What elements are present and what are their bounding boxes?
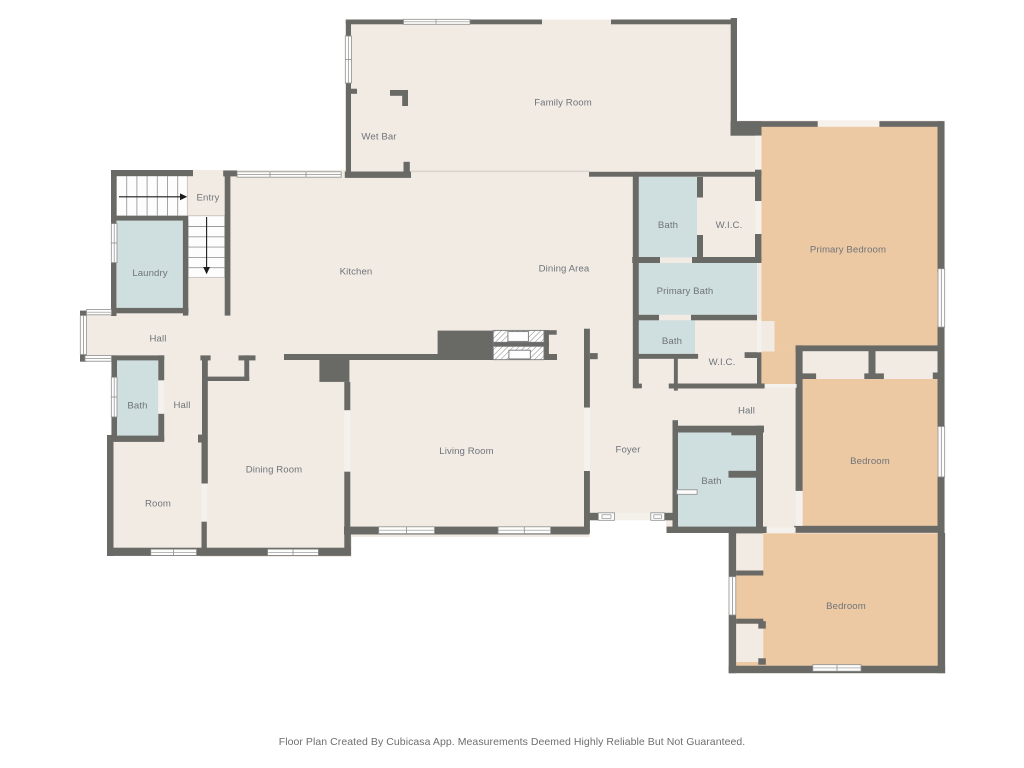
svg-text:Laundry: Laundry — [132, 268, 167, 279]
svg-text:Bath: Bath — [127, 401, 147, 412]
svg-text:Floor Plan Created By Cubicasa: Floor Plan Created By Cubicasa App. Meas… — [279, 736, 746, 748]
svg-text:Bath: Bath — [701, 476, 721, 487]
svg-text:Kitchen: Kitchen — [340, 267, 373, 278]
svg-text:Bath: Bath — [658, 220, 678, 231]
svg-text:Hall: Hall — [150, 334, 167, 345]
svg-text:Family Room: Family Room — [534, 98, 592, 109]
svg-text:Dining Area: Dining Area — [539, 264, 590, 275]
svg-text:Foyer: Foyer — [615, 445, 641, 456]
svg-text:W.I.C.: W.I.C. — [716, 220, 743, 231]
svg-text:Bedroom: Bedroom — [826, 601, 866, 612]
svg-text:W.I.C.: W.I.C. — [709, 357, 736, 368]
svg-text:Entry: Entry — [197, 193, 220, 204]
svg-text:Bedroom: Bedroom — [850, 456, 890, 467]
svg-text:Hall: Hall — [174, 400, 191, 411]
svg-text:Room: Room — [145, 499, 171, 510]
svg-text:Primary Bath: Primary Bath — [657, 286, 714, 297]
svg-text:Dining Room: Dining Room — [246, 465, 303, 476]
svg-text:Primary Bedroom: Primary Bedroom — [810, 245, 886, 256]
svg-text:Living Room: Living Room — [439, 446, 493, 457]
svg-text:Wet Bar: Wet Bar — [361, 132, 397, 143]
svg-text:Bath: Bath — [662, 336, 682, 347]
svg-text:Hall: Hall — [738, 406, 755, 417]
